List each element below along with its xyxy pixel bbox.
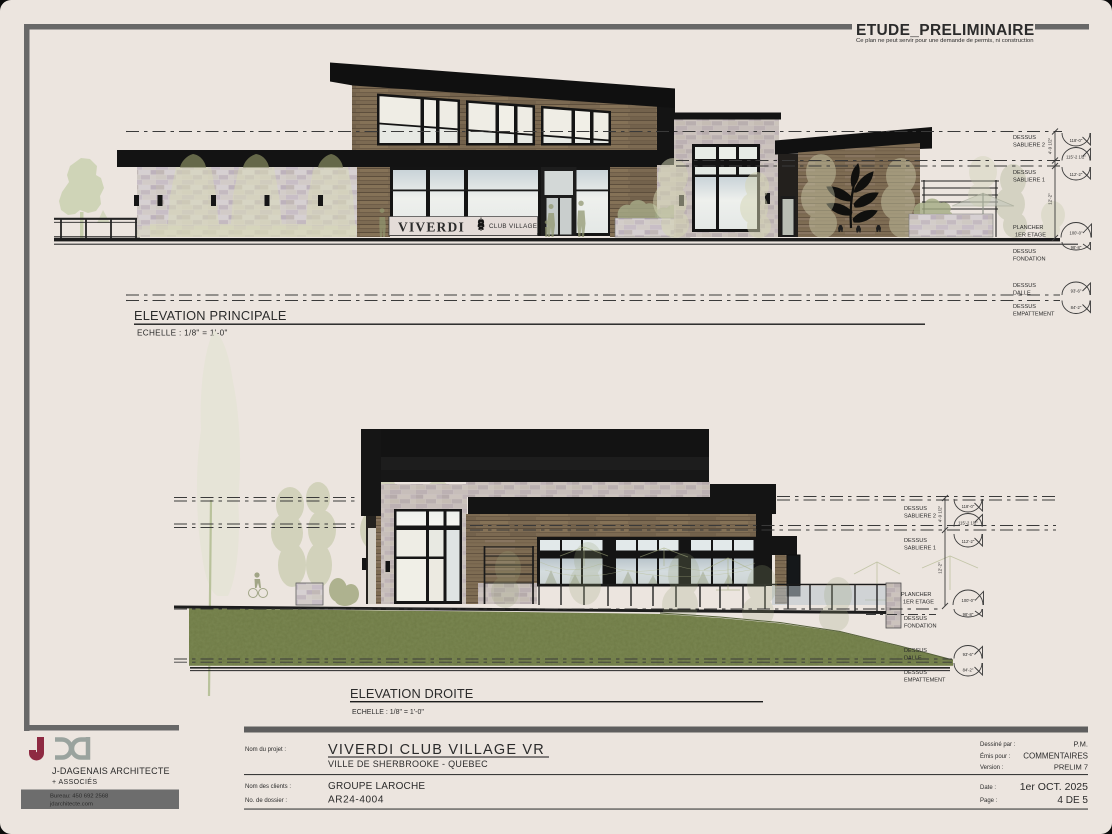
svg-text:98'-8": 98'-8" (1071, 245, 1082, 250)
svg-text:100'-0": 100'-0" (962, 598, 976, 603)
svg-text:VIVERDI: VIVERDI (398, 220, 465, 235)
svg-text:Ce plan ne peut servir pour un: Ce plan ne peut servir pour une demande … (856, 38, 1033, 44)
svg-text:DESSUS: DESSUS (1013, 135, 1036, 141)
svg-text:ETUDE_PRELIMINAIRE: ETUDE_PRELIMINAIRE (856, 22, 1035, 39)
svg-text:SABLIERE 1: SABLIERE 1 (1013, 178, 1045, 184)
svg-text:115'-2 1/2": 115'-2 1/2" (1066, 155, 1086, 160)
svg-text:PRELIM 7: PRELIM 7 (1054, 763, 1088, 772)
svg-text:DESSUS: DESSUS (904, 648, 927, 654)
svg-text:ECHELLE : 1/8" = 1'-0": ECHELLE : 1/8" = 1'-0" (352, 709, 424, 716)
svg-text:100'-0": 100'-0" (1070, 231, 1084, 236)
svg-text:VIVERDI CLUB VILLAGE VR: VIVERDI CLUB VILLAGE VR (328, 742, 545, 758)
svg-text:SABLIERE 2: SABLIERE 2 (1013, 143, 1045, 149)
svg-text:4 DE 5: 4 DE 5 (1057, 795, 1088, 806)
svg-text:P.M.: P.M. (1074, 740, 1088, 749)
svg-text:98'-8": 98'-8" (963, 612, 974, 617)
svg-text:4'-9 1/2": 4'-9 1/2" (1048, 137, 1053, 154)
svg-text:115'-2 1/2": 115'-2 1/2" (958, 521, 978, 526)
svg-text:12'-2": 12'-2" (1048, 193, 1053, 205)
svg-text:1er OCT. 2025: 1er OCT. 2025 (1020, 781, 1088, 793)
svg-text:EMPATTEMENT: EMPATTEMENT (1013, 312, 1055, 318)
svg-text:DESSUS: DESSUS (904, 670, 927, 676)
svg-text:93'-6": 93'-6" (963, 652, 974, 657)
svg-text:118'-0": 118'-0" (962, 504, 975, 509)
svg-text:DALLE: DALLE (1013, 291, 1031, 297)
svg-text:112'-2": 112'-2" (962, 539, 975, 544)
svg-text:FONDATION: FONDATION (1013, 257, 1046, 263)
svg-text:DESSUS: DESSUS (1013, 249, 1036, 255)
svg-text:SABLIERE 2: SABLIERE 2 (904, 514, 936, 520)
svg-text:CLUB VILLAGE: CLUB VILLAGE (489, 223, 537, 230)
svg-text:Version :: Version : (980, 765, 1004, 771)
svg-text:1ER ETAGE: 1ER ETAGE (903, 600, 934, 606)
svg-text:+ ASSOCIÉS: + ASSOCIÉS (52, 777, 97, 786)
svg-text:4'-9 1/2": 4'-9 1/2" (938, 505, 943, 522)
svg-text:AR24-4004: AR24-4004 (328, 795, 384, 806)
svg-text:DESSUS: DESSUS (1013, 283, 1036, 289)
svg-text:Émis pour :: Émis pour : (980, 753, 1011, 760)
svg-text:DESSUS: DESSUS (904, 506, 927, 512)
svg-text:12'-2": 12'-2" (938, 562, 943, 574)
svg-text:DESSUS: DESSUS (904, 616, 927, 622)
svg-text:GROUPE LAROCHE: GROUPE LAROCHE (328, 781, 425, 792)
svg-text:J-DAGENAIS ARCHITECTE: J-DAGENAIS ARCHITECTE (52, 766, 170, 776)
svg-text:Nom du projet :: Nom du projet : (245, 747, 286, 753)
svg-text:FONDATION: FONDATION (904, 624, 937, 630)
svg-text:Nom des clients :: Nom des clients : (245, 784, 291, 790)
svg-text:ELEVATION DROITE: ELEVATION DROITE (350, 686, 473, 701)
svg-text:118'-0": 118'-0" (1070, 138, 1083, 143)
svg-text:84'-2": 84'-2" (1071, 305, 1082, 310)
svg-text:DESSUS: DESSUS (1013, 304, 1036, 310)
svg-text:PLANCHER: PLANCHER (901, 592, 931, 598)
svg-text:DESSUS: DESSUS (1013, 170, 1036, 176)
svg-text:jdarchitecte.com: jdarchitecte.com (49, 802, 93, 808)
svg-text:VILLE DE SHERBROOKE - QUEBEC: VILLE DE SHERBROOKE - QUEBEC (328, 759, 488, 769)
svg-text:Bureau: 450 692 2568: Bureau: 450 692 2568 (50, 794, 109, 800)
svg-text:PLANCHER: PLANCHER (1013, 225, 1043, 231)
svg-text:DESSUS: DESSUS (904, 538, 927, 544)
svg-text:1ER ETAGE: 1ER ETAGE (1015, 233, 1046, 239)
svg-text:SABLIERE 1: SABLIERE 1 (904, 546, 936, 552)
svg-text:ELEVATION PRINCIPALE: ELEVATION PRINCIPALE (134, 308, 287, 323)
svg-text:Dessiné par :: Dessiné par : (980, 742, 1016, 748)
svg-text:DALLE: DALLE (904, 656, 922, 662)
svg-text:93'-6": 93'-6" (1071, 289, 1082, 294)
svg-text:112'-2": 112'-2" (1070, 172, 1083, 177)
svg-text:COMMENTAIRES: COMMENTAIRES (1023, 752, 1088, 761)
svg-text:Date :: Date : (980, 785, 996, 791)
svg-text:Page :: Page : (980, 798, 998, 804)
svg-text:EMPATTEMENT: EMPATTEMENT (904, 678, 946, 684)
svg-text:84'-2": 84'-2" (963, 668, 974, 673)
svg-text:No. de dossier :: No. de dossier : (245, 798, 287, 804)
